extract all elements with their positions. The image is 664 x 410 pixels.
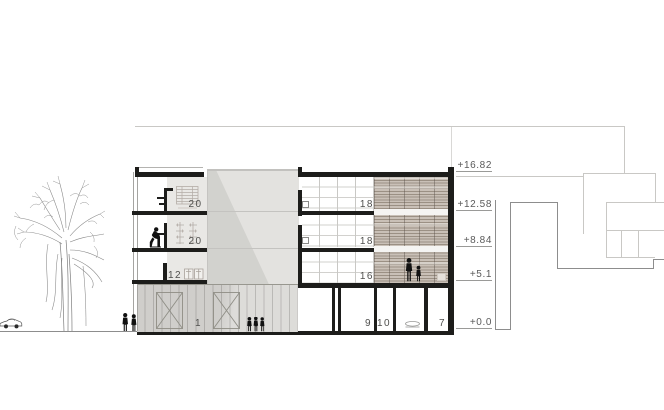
sofa-icon	[404, 320, 421, 329]
background-line	[583, 173, 584, 234]
car-icon	[0, 313, 23, 332]
profile-line	[653, 259, 664, 260]
wall-section-mark	[164, 188, 173, 191]
elevation-tick	[456, 328, 492, 329]
background-window-line	[638, 230, 639, 257]
core-floor-line	[207, 248, 299, 249]
room-number-20-f2: 20	[189, 237, 203, 246]
elevation-label-0-0: +0.0	[430, 318, 492, 328]
people-silhouettes	[121, 313, 140, 332]
room-number-12-f1: 12	[168, 271, 182, 280]
profile-line	[653, 259, 654, 268]
braced-panel-icon	[213, 292, 240, 329]
room-number-20-f3: 20	[189, 200, 203, 209]
floor-slab	[298, 283, 454, 288]
room-number-16-f1: 16	[358, 272, 374, 281]
louver-slab-band	[374, 209, 448, 216]
wall-section-mark	[163, 263, 167, 280]
background-edge-line	[624, 126, 625, 173]
background-line	[583, 173, 655, 174]
door-section-mark	[302, 201, 309, 208]
wall-section-mark	[157, 197, 164, 199]
core-volume	[207, 169, 300, 286]
wall-section-mark	[159, 203, 164, 205]
background-window-line	[606, 230, 664, 231]
parapet-upstand	[298, 167, 302, 178]
room-divider	[424, 288, 428, 331]
elevation-tick	[456, 280, 492, 281]
room-number-1: 1	[195, 319, 202, 328]
profile-line	[495, 329, 511, 330]
people-silhouettes	[403, 258, 425, 282]
louver-highlight	[374, 223, 448, 226]
background-window-line	[606, 257, 655, 258]
elevation-label-5-1: +5.1	[430, 270, 492, 280]
louver-highlight	[374, 177, 448, 179]
floor-slab	[298, 248, 375, 253]
louver-highlight	[374, 186, 448, 189]
tree-sketch-icon	[0, 174, 106, 332]
elevation-label-16-82: +16.82	[430, 161, 492, 171]
room-number-18-f3: 18	[358, 200, 374, 209]
room-divider	[338, 288, 341, 331]
braced-panel-icon	[156, 292, 183, 329]
elevation-tick	[456, 171, 492, 172]
cabinet-icon	[184, 268, 204, 280]
core-shadow	[208, 171, 300, 286]
profile-line	[510, 202, 557, 203]
background-window-line	[606, 202, 664, 203]
room-number-9: 9	[360, 319, 372, 328]
seated-person-icon	[149, 226, 173, 248]
wall-section-mark	[164, 188, 168, 211]
profile-line	[557, 268, 654, 269]
people-silhouettes	[246, 317, 267, 332]
floor-slab	[298, 211, 375, 216]
section-drawing: 1	[0, 0, 664, 410]
wall-section-mark	[298, 252, 302, 288]
elevation-label-8-84: +8.84	[430, 236, 492, 246]
elevation-tick	[456, 246, 492, 247]
profile-line	[495, 200, 496, 330]
elevation-tick	[456, 210, 492, 211]
profile-line	[557, 202, 558, 268]
elevation-label-12-58: +12.58	[430, 200, 492, 210]
background-roofline	[135, 126, 625, 127]
room-divider	[393, 288, 396, 331]
floor-slab	[132, 211, 207, 216]
background-line	[456, 176, 584, 177]
core-floor-line	[207, 211, 299, 212]
profile-line	[510, 202, 511, 329]
room-number-10: 10	[377, 319, 391, 328]
door-section-mark	[302, 237, 309, 244]
parapet-upstand	[135, 167, 139, 178]
background-line	[655, 173, 656, 203]
parapet-line	[135, 167, 203, 168]
room-divider	[332, 288, 335, 331]
background-window-line	[621, 230, 622, 257]
louver-slab-band	[374, 246, 448, 253]
room-number-18-f2: 18	[358, 237, 374, 246]
section-wall-right	[448, 167, 454, 336]
floor-slab	[132, 248, 207, 253]
